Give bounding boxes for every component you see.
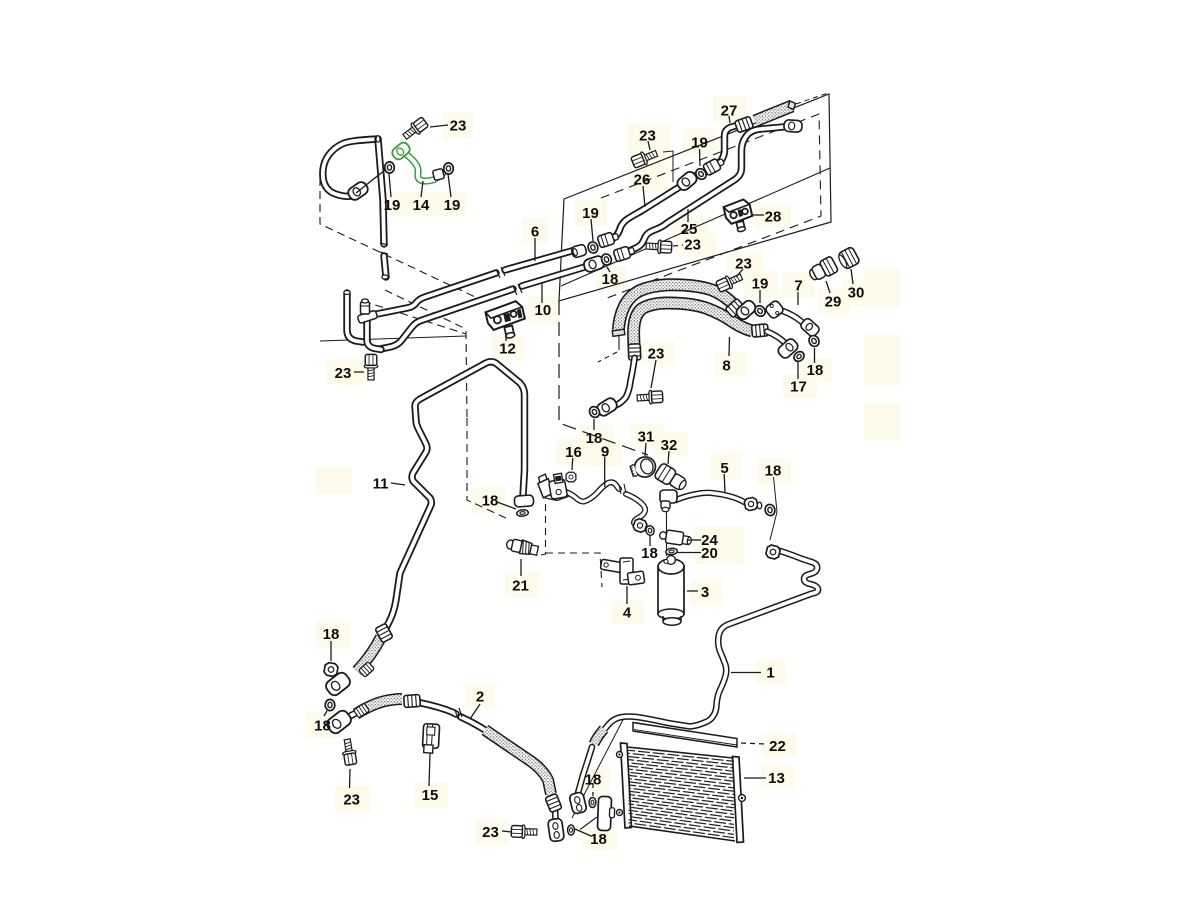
svg-text:25: 25 bbox=[681, 221, 698, 238]
svg-text:3: 3 bbox=[701, 584, 709, 601]
svg-text:21: 21 bbox=[512, 578, 529, 595]
svg-text:19: 19 bbox=[384, 197, 401, 214]
svg-text:14: 14 bbox=[413, 197, 430, 214]
svg-text:30: 30 bbox=[848, 285, 865, 302]
svg-text:23: 23 bbox=[735, 256, 752, 273]
svg-text:19: 19 bbox=[444, 197, 461, 214]
svg-text:18: 18 bbox=[765, 463, 782, 480]
svg-text:18: 18 bbox=[585, 772, 602, 789]
svg-text:13: 13 bbox=[768, 770, 785, 787]
svg-text:18: 18 bbox=[807, 362, 824, 379]
svg-text:27: 27 bbox=[721, 103, 738, 120]
svg-text:19: 19 bbox=[582, 205, 599, 222]
svg-text:26: 26 bbox=[634, 172, 651, 189]
svg-text:28: 28 bbox=[765, 209, 782, 226]
svg-text:10: 10 bbox=[535, 302, 552, 319]
svg-text:18: 18 bbox=[323, 626, 340, 643]
svg-text:11: 11 bbox=[373, 476, 389, 493]
svg-text:5: 5 bbox=[720, 460, 728, 477]
svg-text:9: 9 bbox=[601, 444, 609, 461]
svg-text:22: 22 bbox=[769, 738, 786, 755]
svg-text:17: 17 bbox=[790, 379, 807, 396]
svg-text:19: 19 bbox=[752, 276, 769, 293]
svg-text:18: 18 bbox=[482, 493, 499, 510]
svg-text:18: 18 bbox=[602, 271, 619, 288]
svg-text:20: 20 bbox=[701, 545, 718, 562]
svg-text:32: 32 bbox=[661, 437, 678, 454]
svg-text:19: 19 bbox=[691, 135, 708, 152]
svg-text:23: 23 bbox=[335, 365, 352, 382]
svg-text:7: 7 bbox=[794, 278, 802, 295]
svg-text:8: 8 bbox=[722, 358, 730, 375]
svg-text:31: 31 bbox=[638, 429, 655, 446]
svg-text:18: 18 bbox=[314, 718, 331, 735]
svg-text:23: 23 bbox=[684, 237, 701, 254]
svg-text:2: 2 bbox=[476, 689, 484, 706]
svg-text:16: 16 bbox=[565, 444, 582, 461]
svg-text:18: 18 bbox=[641, 545, 658, 562]
svg-text:1: 1 bbox=[766, 665, 774, 682]
svg-text:23: 23 bbox=[639, 128, 656, 145]
svg-text:23: 23 bbox=[648, 346, 665, 363]
svg-text:15: 15 bbox=[422, 787, 439, 804]
svg-text:18: 18 bbox=[590, 831, 607, 848]
svg-text:6: 6 bbox=[531, 224, 539, 241]
svg-text:23: 23 bbox=[450, 118, 467, 135]
svg-text:12: 12 bbox=[499, 341, 516, 358]
svg-text:23: 23 bbox=[343, 792, 360, 809]
svg-text:23: 23 bbox=[482, 824, 499, 841]
svg-text:29: 29 bbox=[825, 294, 842, 311]
svg-text:18: 18 bbox=[586, 430, 603, 447]
svg-text:4: 4 bbox=[623, 605, 632, 622]
